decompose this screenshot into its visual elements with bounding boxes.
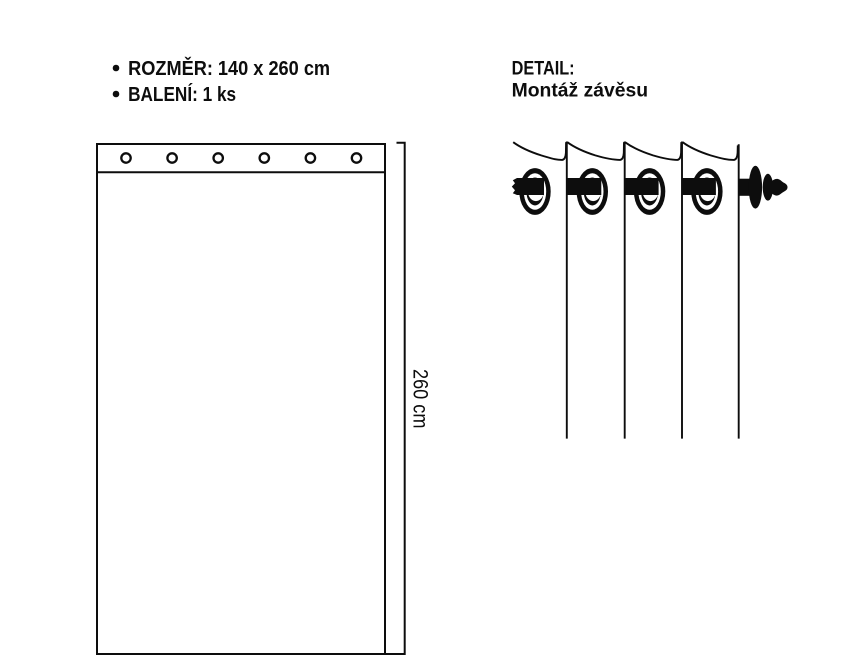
svg-text:260 cm: 260 cm xyxy=(409,369,433,429)
svg-text:Montáž závěsu: Montáž závěsu xyxy=(512,80,648,101)
svg-text:DETAIL:: DETAIL: xyxy=(512,58,575,79)
svg-text:ROZMĚR: 140 x 260 cm: ROZMĚR: 140 x 260 cm xyxy=(128,56,330,80)
svg-text:BALENÍ: 1 ks: BALENÍ: 1 ks xyxy=(128,83,236,106)
